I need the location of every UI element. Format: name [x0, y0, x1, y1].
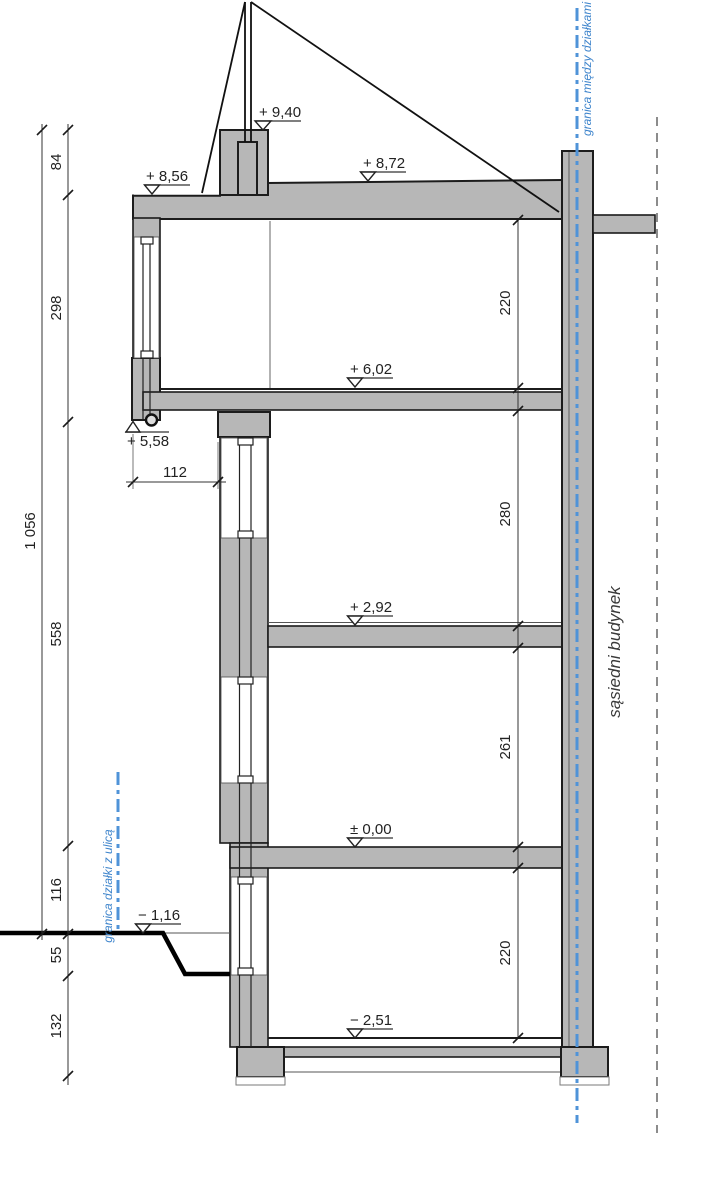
level-marker-ground-floor: ± 0,00 [347, 821, 393, 847]
foundation-footing-right [560, 1047, 609, 1085]
level-floor-1: + 2,92 [350, 599, 392, 616]
left-dimension-chain: 1 056 84 298 558 116 55 132 [22, 124, 73, 1085]
dim-room-220-top: 220 [497, 290, 514, 315]
floor-slab-602 [143, 389, 562, 437]
roof-slab [133, 180, 563, 220]
level-marker-roof-right: + 8,72 [360, 155, 406, 181]
foundation-footing-left [236, 1047, 285, 1085]
dim-84: 84 [48, 154, 65, 171]
level-roof-left: + 8,56 [146, 168, 188, 185]
plot-boundary-label: granica między działkami [580, 2, 594, 136]
street-boundary-label: granica działki z ulicą [101, 829, 115, 943]
level-marker-street: − 1,16 [135, 907, 181, 933]
ground-line [0, 933, 230, 974]
level-street: − 1,16 [138, 907, 180, 924]
level-marker-attic-top: + 9,40 [255, 104, 301, 130]
level-soffit: + 5,58 [127, 433, 169, 450]
dim-room-280: 280 [497, 501, 514, 526]
level-floor-2: + 6,02 [350, 361, 392, 378]
dim-room-261: 261 [497, 734, 514, 759]
architectural-section-drawing: 1 056 84 298 558 116 55 132 220 280 261 … [0, 0, 727, 1200]
basement-floor-slab [250, 1038, 585, 1072]
section-canvas: 1 056 84 298 558 116 55 132 220 280 261 … [0, 0, 727, 1200]
window-ground-floor [221, 677, 267, 783]
floor-slab-000 [230, 847, 562, 868]
drain-pipe [146, 415, 157, 426]
level-marker-soffit: + 5,58 [125, 422, 169, 451]
dim-558: 558 [48, 621, 65, 646]
attic-parapet-block [220, 130, 268, 195]
dim-55: 55 [48, 947, 65, 964]
level-marker-basement: − 2,51 [347, 1012, 393, 1038]
level-marker-floor-2: + 6,02 [347, 361, 393, 387]
dim-112: 112 [163, 464, 187, 481]
level-ground-floor: ± 0,00 [350, 821, 392, 838]
level-marker-roof-left: + 8,56 [144, 168, 190, 194]
level-attic-top: + 9,40 [259, 104, 301, 121]
dim-total-height: 1 056 [22, 512, 39, 550]
level-marker-floor-1: + 2,92 [347, 599, 393, 625]
dim-132: 132 [48, 1013, 65, 1038]
window-second-floor [221, 438, 267, 538]
window-top-floor [134, 237, 159, 358]
neighbor-building-label: sąsiedni budynek [605, 585, 624, 718]
level-basement: − 2,51 [350, 1012, 392, 1029]
level-roof-right: + 8,72 [363, 155, 405, 172]
dim-room-220-basement: 220 [497, 940, 514, 965]
dim-116: 116 [48, 878, 65, 902]
neighbor-building-slab [593, 215, 655, 233]
window-basement [231, 877, 267, 975]
dim-298: 298 [48, 295, 65, 320]
